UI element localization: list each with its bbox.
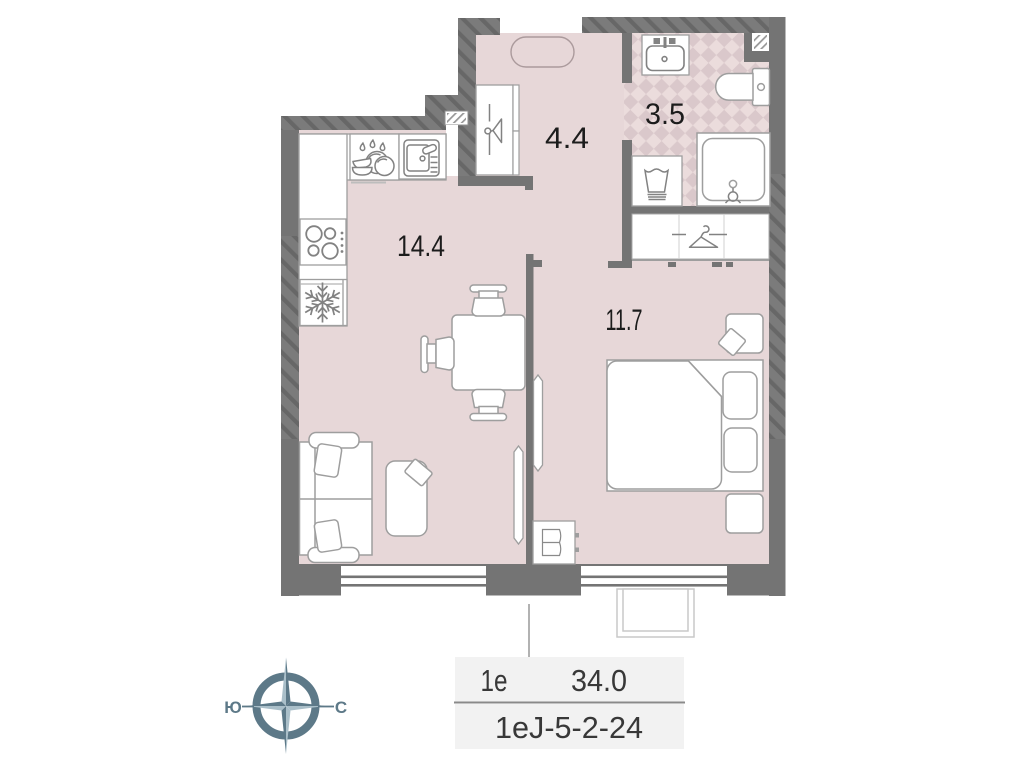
svg-text:3.5: 3.5 bbox=[645, 98, 685, 131]
svg-text:4.4: 4.4 bbox=[545, 122, 589, 155]
svg-text:14.4: 14.4 bbox=[397, 230, 445, 263]
svg-text:11.7: 11.7 bbox=[606, 304, 643, 337]
svg-text:Ю: Ю bbox=[224, 698, 242, 717]
svg-text:С: С bbox=[335, 698, 347, 717]
svg-text:34.0: 34.0 bbox=[571, 663, 627, 698]
svg-text:1е: 1е bbox=[481, 663, 508, 698]
svg-text:1еJ-5-2-24: 1еJ-5-2-24 bbox=[495, 710, 643, 745]
